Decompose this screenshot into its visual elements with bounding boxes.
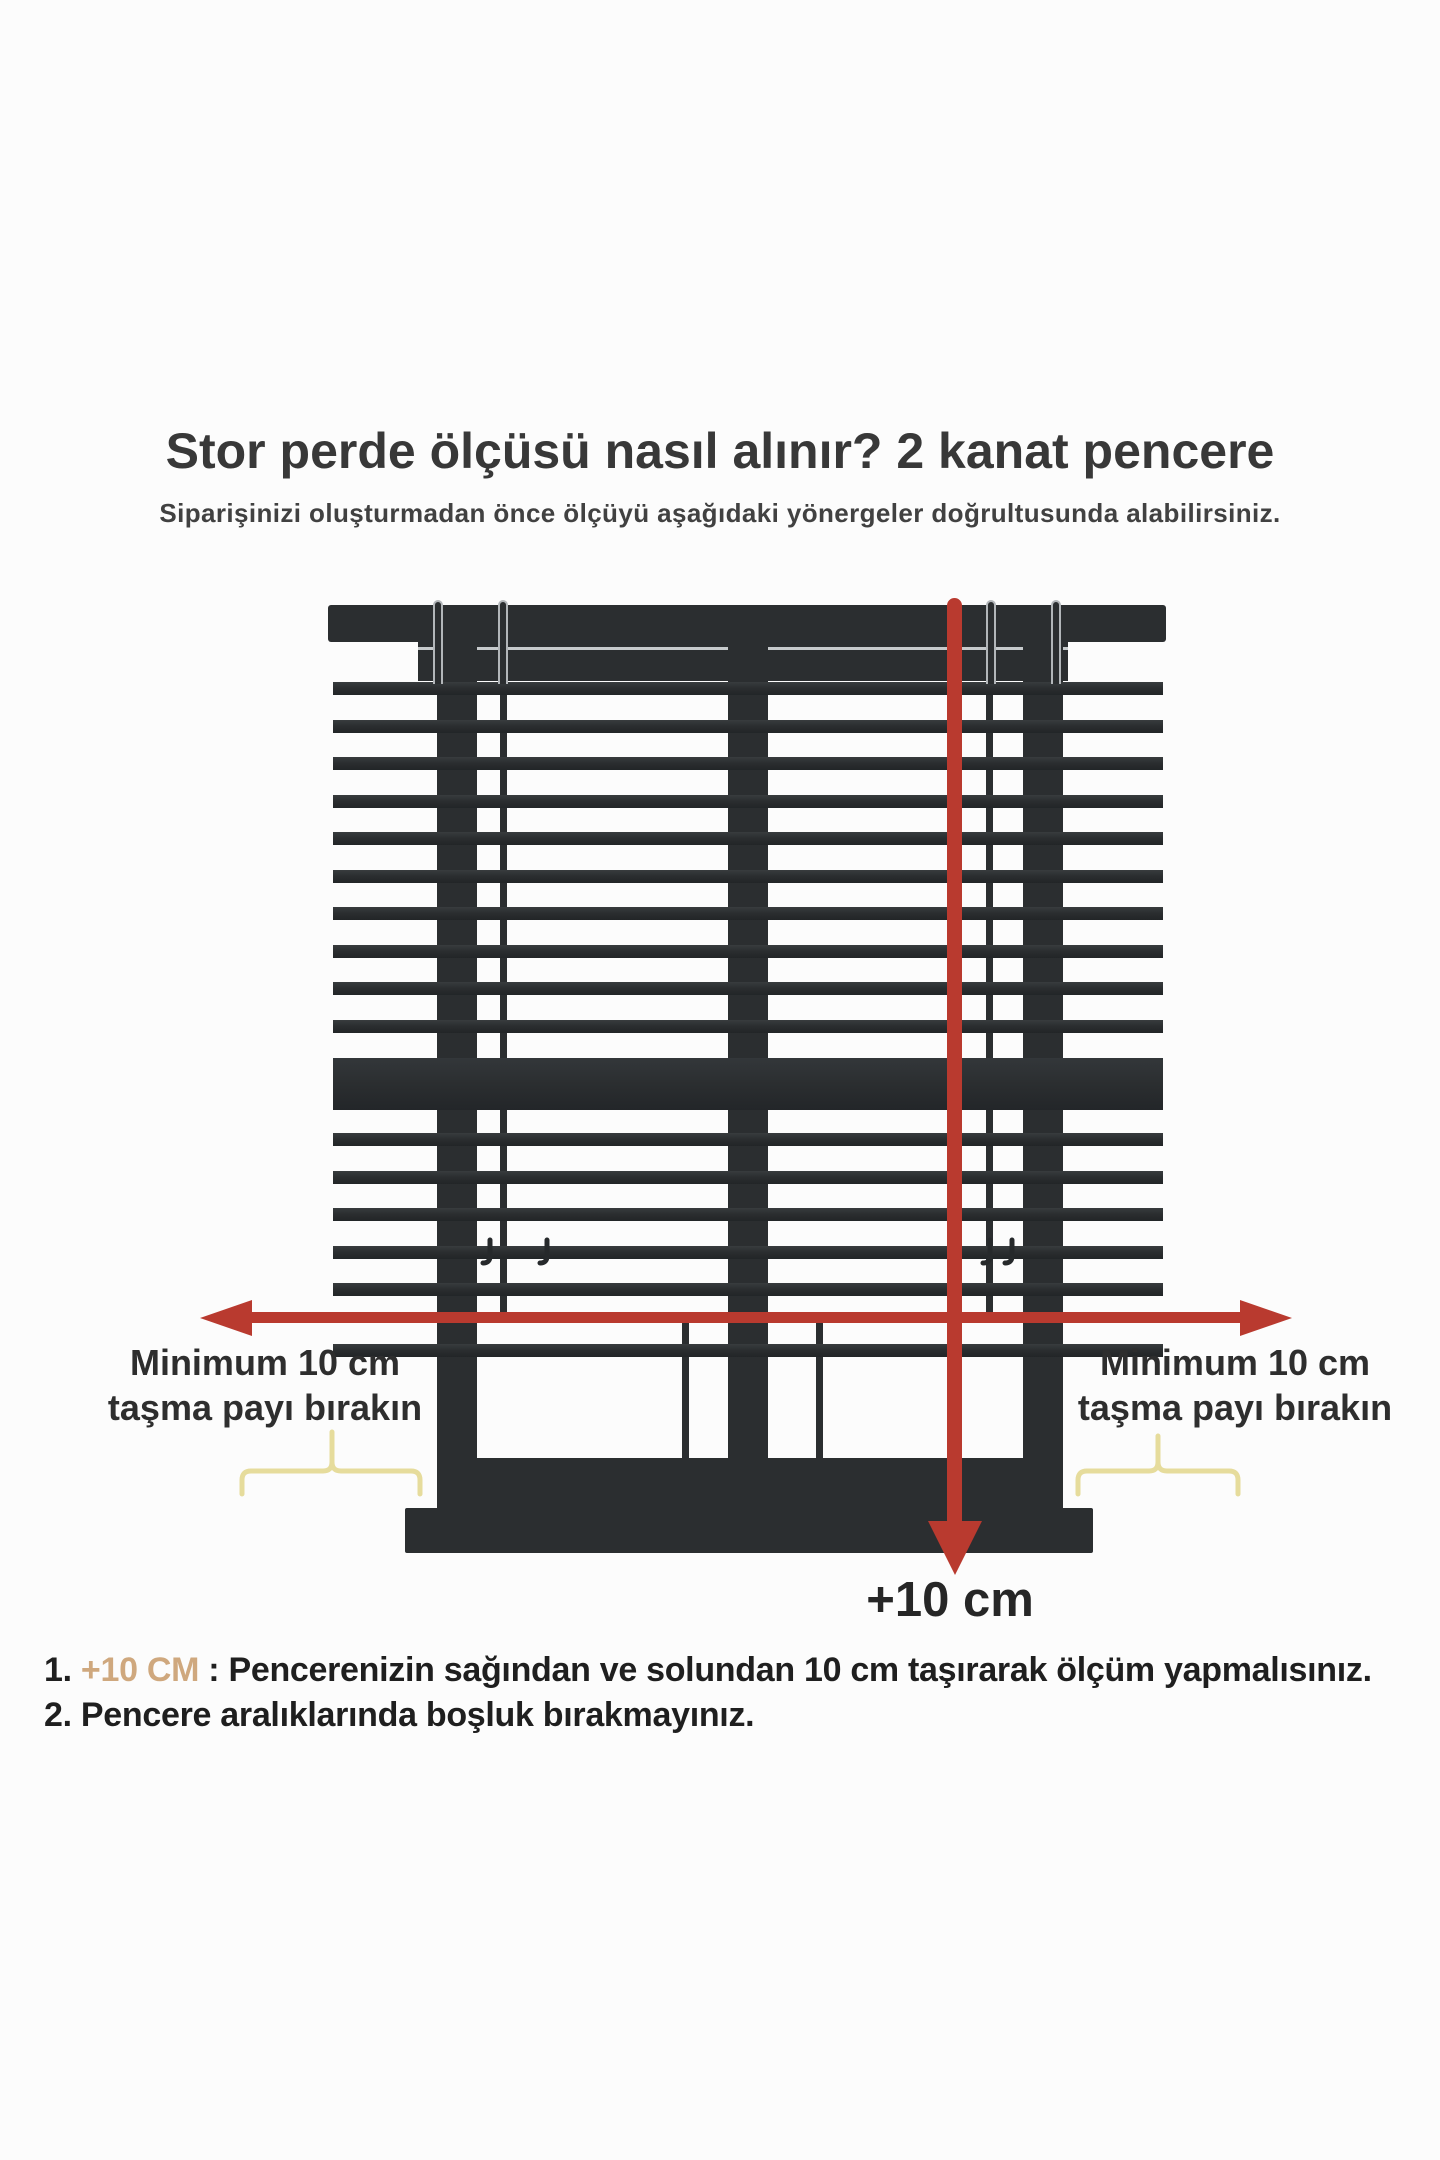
blind-slat — [333, 1171, 1163, 1184]
instruction-2-text: Pencere aralıklarında boşluk bırakmayını… — [81, 1696, 754, 1734]
right-overhang-brace — [1078, 1436, 1238, 1494]
blind-slat — [333, 1246, 1163, 1259]
blind-slat — [333, 907, 1163, 920]
instruction-item-1: 1. +10 CM : Pencerenizin sağından ve sol… — [44, 1648, 1372, 1693]
left-overhang-note-line2: taşma payı bırakın — [95, 1385, 435, 1430]
blind-slat — [333, 982, 1163, 995]
blind-slat — [333, 682, 1163, 695]
blind-slat — [333, 1208, 1163, 1221]
left-overhang-brace — [242, 1432, 420, 1494]
width-arrow-shaft — [250, 1312, 1242, 1323]
left-overhang-note: Minimum 10 cm taşma payı bırakın — [95, 1340, 435, 1430]
frame-outline-loop — [498, 600, 508, 684]
instruction-1-number: 1. — [44, 1651, 72, 1689]
left-overhang-note-line1: Minimum 10 cm — [95, 1340, 435, 1385]
right-overhang-note: Minimum 10 cm taşma payı bırakın — [1065, 1340, 1405, 1430]
frame-outline-loop — [1051, 600, 1061, 684]
blind-slat — [333, 832, 1163, 845]
instruction-1-highlight: +10 CM — [81, 1651, 199, 1689]
instruction-item-2: 2. Pencere aralıklarında boşluk bırakmay… — [44, 1693, 1372, 1738]
page-title: Stor perde ölçüsü nasıl alınır? 2 kanat … — [0, 422, 1440, 480]
frame-outline-loop — [433, 600, 443, 684]
window-lower-right-casement-line — [816, 1322, 823, 1458]
blind-headrail — [328, 605, 1166, 642]
blind-slat — [333, 720, 1163, 733]
instructions-list: 1. +10 CM : Pencerenizin sağından ve sol… — [44, 1648, 1372, 1738]
frame-outline-loop — [986, 600, 996, 684]
window-bottom-frame — [437, 1458, 1063, 1508]
measurement-guide-page: Stor perde ölçüsü nasıl alınır? 2 kanat … — [0, 0, 1440, 2160]
page-subtitle: Siparişinizi oluşturmadan önce ölçüyü aş… — [0, 498, 1440, 529]
height-arrow-head — [928, 1521, 982, 1575]
instruction-1-text: Pencerenizin sağından ve solundan 10 cm … — [228, 1651, 1371, 1689]
window-sill — [405, 1508, 1093, 1553]
blind-slat — [333, 757, 1163, 770]
blind-slat — [333, 1133, 1163, 1146]
width-arrow-right-head — [1240, 1300, 1292, 1336]
blind-slat — [333, 870, 1163, 883]
width-arrow-left-head — [200, 1300, 252, 1336]
blind-slat — [333, 795, 1163, 808]
blind-slat — [333, 1283, 1163, 1296]
blind-slat — [333, 1020, 1163, 1033]
blind-middle-rail — [333, 1058, 1163, 1110]
height-arrow-shaft — [947, 598, 962, 1523]
blind-slat — [333, 945, 1163, 958]
instruction-2-number: 2. — [44, 1696, 72, 1734]
right-overhang-note-line1: Minimum 10 cm — [1065, 1340, 1405, 1385]
window-lower-left-casement-line — [682, 1322, 689, 1458]
right-overhang-note-line2: taşma payı bırakın — [1065, 1385, 1405, 1430]
blind-slat — [333, 1344, 1163, 1357]
height-arrow-label: +10 cm — [840, 1572, 1060, 1628]
instruction-1-separator: : — [199, 1651, 228, 1689]
